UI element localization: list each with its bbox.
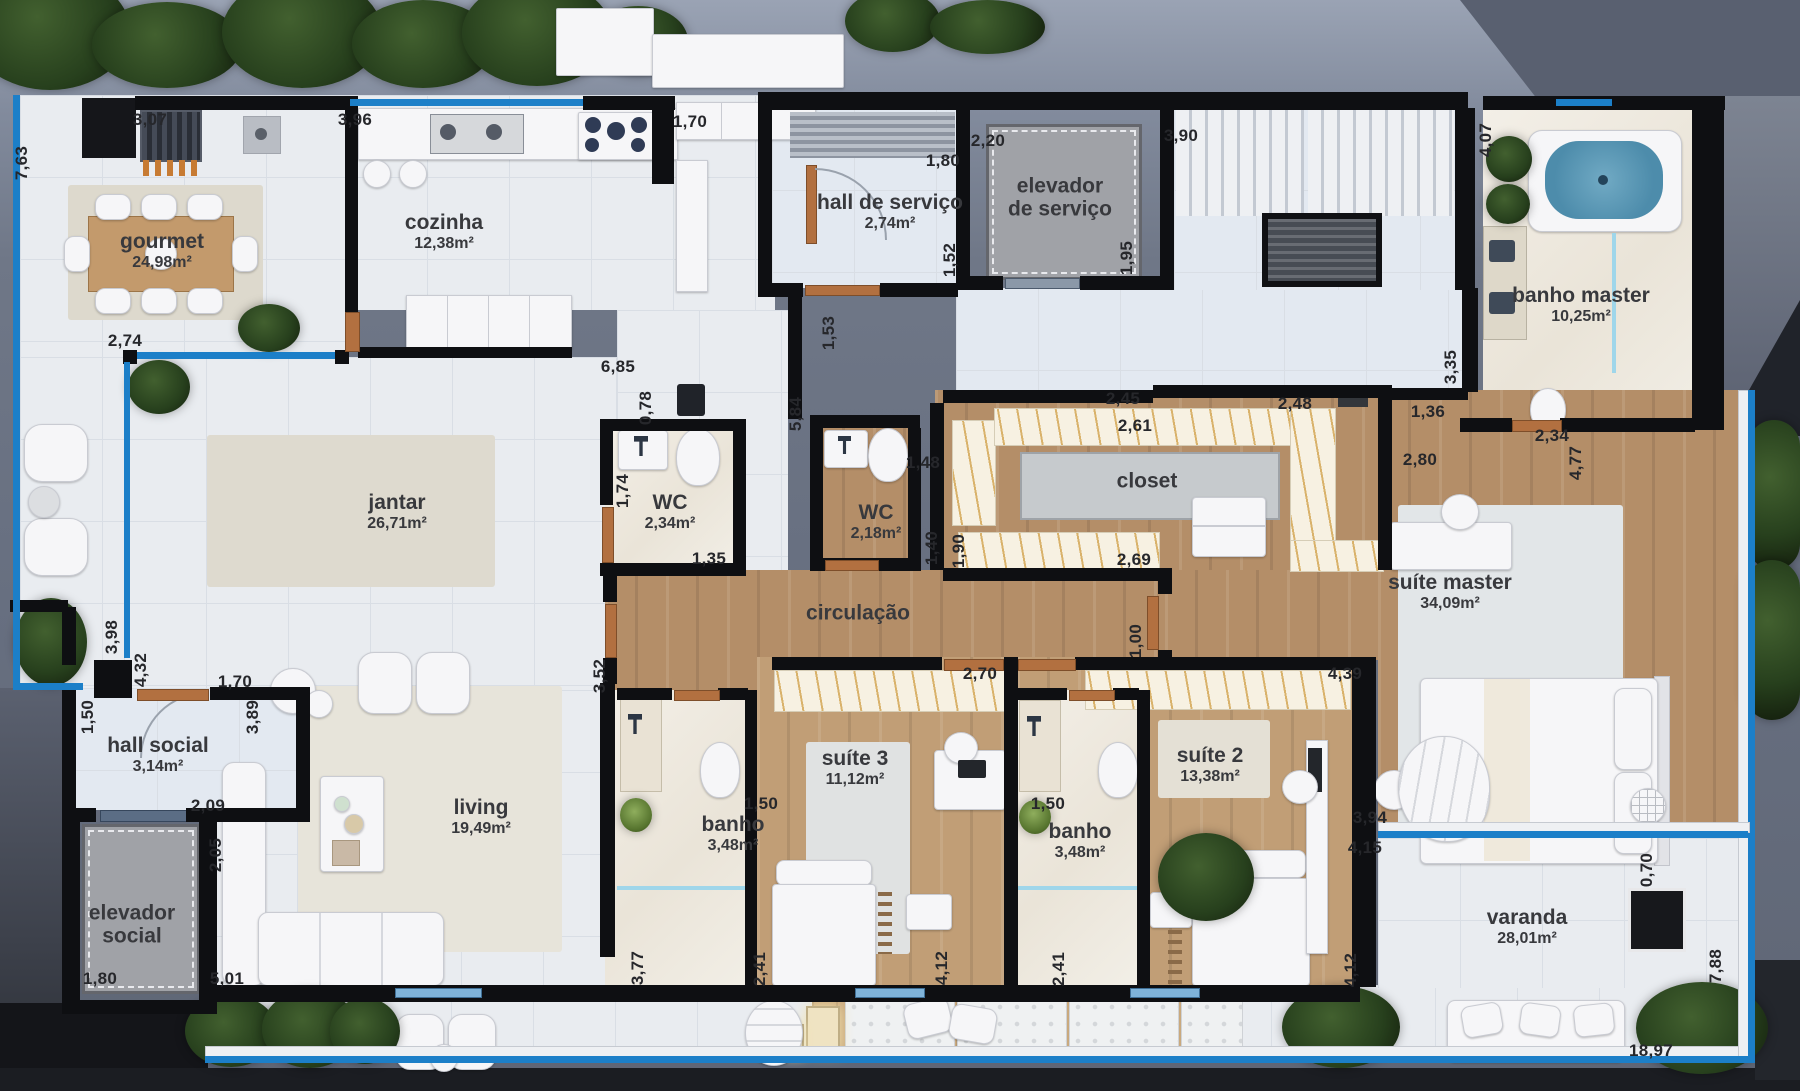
dimension-label: 3,77 <box>628 951 648 985</box>
dimension-label: 3,96 <box>338 110 372 130</box>
room-label-suite-2: suíte 213,38m² <box>1177 745 1244 785</box>
dimension-label: 4,39 <box>1328 664 1362 684</box>
room-label-gourmet: gourmet24,98m² <box>120 231 204 271</box>
dimension-label: 0,78 <box>636 391 656 425</box>
room-name-text: cozinha <box>405 212 483 235</box>
dimension-label: 1,00 <box>1126 624 1146 658</box>
dimension-label: 1,80 <box>83 969 117 989</box>
room-label-banho-master: banho master10,25m² <box>1512 285 1650 325</box>
dimension-label: 2,34 <box>1535 426 1569 446</box>
dimension-label: 1,36 <box>1411 402 1445 422</box>
room-area-text: 26,71m² <box>367 515 427 532</box>
room-label-banho-3: banho3,48m² <box>702 814 765 854</box>
room-area-text: 19,49m² <box>451 820 511 837</box>
dimension-label: 2,69 <box>1117 550 1151 570</box>
room-label-varanda: varanda28,01m² <box>1487 907 1568 947</box>
room-name-text: elevador <box>1008 175 1112 198</box>
room-label-jantar: jantar26,71m² <box>367 492 427 532</box>
room-area-text: 13,38m² <box>1177 768 1244 785</box>
dimension-label: 2,41 <box>1049 952 1069 986</box>
room-area-text: 11,12m² <box>822 771 889 788</box>
dimension-label: 3,07 <box>133 110 167 130</box>
dimension-label: 2,41 <box>750 952 770 986</box>
dimension-label: 4,12 <box>932 951 952 985</box>
dimension-label: 3,94 <box>1353 808 1387 828</box>
dimension-label: 5,01 <box>210 969 244 989</box>
room-area-text: 3,48m² <box>702 837 765 854</box>
dimension-label: 1,52 <box>940 243 960 277</box>
dimension-label: 2,45 <box>1106 389 1140 409</box>
room-name-text: banho <box>702 814 765 837</box>
room-name-text: living <box>451 797 511 820</box>
floor-plan-canvas: gourmet24,98m²cozinha12,38m²hall de serv… <box>0 0 1800 1091</box>
room-area-text: 2,18m² <box>851 525 902 542</box>
dimension-label: 2,05 <box>206 838 226 872</box>
room-name-text: hall de serviço <box>817 192 963 215</box>
room-label-hall-servico: hall de serviço2,74m² <box>817 192 963 232</box>
room-name-text: suíte 3 <box>822 748 889 771</box>
room-name-text: social <box>89 925 175 948</box>
dimension-label: 2,48 <box>1278 394 1312 414</box>
room-name-text: hall social <box>107 735 209 758</box>
dimension-label: 1,48 <box>906 453 940 473</box>
room-label-circulacao: circulação <box>806 603 910 626</box>
dimension-label: 3,35 <box>1441 350 1461 384</box>
room-name-text: suíte 2 <box>1177 745 1244 768</box>
dimension-label: 1,80 <box>926 151 960 171</box>
dimension-label: 1,50 <box>1031 794 1065 814</box>
room-name-text: elevador <box>89 902 175 925</box>
dimension-label: 1,70 <box>218 672 252 692</box>
dimension-label: 2,20 <box>971 131 1005 151</box>
dimension-label: 4,15 <box>1348 838 1382 858</box>
dimension-label: 1,53 <box>819 316 839 350</box>
room-name-text: banho master <box>1512 285 1650 308</box>
dimension-label: 4,32 <box>131 653 151 687</box>
room-area-text: 3,48m² <box>1049 844 1112 861</box>
dimension-label: 4,12 <box>1341 953 1361 987</box>
dimension-label: 1,90 <box>949 534 969 568</box>
room-area-text: 10,25m² <box>1512 308 1650 325</box>
dimension-label: 4,07 <box>1476 123 1496 157</box>
dimension-label: 4,77 <box>1566 446 1586 480</box>
dimension-label: 2,61 <box>1118 416 1152 436</box>
dimension-label: 1,50 <box>78 700 98 734</box>
room-name-text: circulação <box>806 603 910 626</box>
room-name-text: de serviço <box>1008 198 1112 221</box>
room-name-text: varanda <box>1487 907 1568 930</box>
room-area-text: 3,14m² <box>107 758 209 775</box>
dimension-label: 18,97 <box>1629 1041 1673 1061</box>
room-label-closet: closet <box>1117 471 1178 494</box>
room-area-text: 2,74m² <box>817 215 963 232</box>
room-label-wc-1: WC2,34m² <box>645 492 696 532</box>
dimension-label: 0,70 <box>1637 853 1657 887</box>
dimension-label: 7,63 <box>12 146 32 180</box>
dimension-label: 1,74 <box>613 474 633 508</box>
room-label-suite-master: suíte master34,09m² <box>1388 572 1512 612</box>
dimension-label: 2,70 <box>963 664 997 684</box>
dimension-label: 3,89 <box>243 700 263 734</box>
room-name-text: jantar <box>367 492 427 515</box>
room-label-cozinha: cozinha12,38m² <box>405 212 483 252</box>
room-label-banho-2: banho3,48m² <box>1049 821 1112 861</box>
room-name-text: gourmet <box>120 231 204 254</box>
room-name-text: WC <box>645 492 696 515</box>
dimension-label: 7,88 <box>1706 949 1726 983</box>
room-label-hall-social: hall social3,14m² <box>107 735 209 775</box>
room-area-text: 2,34m² <box>645 515 696 532</box>
room-label-living: living19,49m² <box>451 797 511 837</box>
dimension-label: 1,50 <box>744 794 778 814</box>
dimension-label: 3,52 <box>590 659 610 693</box>
dimension-label: 3,90 <box>1164 126 1198 146</box>
dimension-label: 1,40 <box>922 531 942 565</box>
dimension-label: 2,80 <box>1403 450 1437 470</box>
room-name-text: suíte master <box>1388 572 1512 595</box>
dimension-label: 2,74 <box>108 331 142 351</box>
room-area-text: 12,38m² <box>405 235 483 252</box>
dimension-label: 2,09 <box>191 796 225 816</box>
room-name-text: banho <box>1049 821 1112 844</box>
room-label-elevador-social: elevadorsocial <box>89 902 175 947</box>
dimension-label: 5,84 <box>786 397 806 431</box>
dimension-label: 1,70 <box>673 112 707 132</box>
room-label-wc-2: WC2,18m² <box>851 502 902 542</box>
room-area-text: 24,98m² <box>120 254 204 271</box>
dimension-label: 3,98 <box>102 620 122 654</box>
room-name-text: WC <box>851 502 902 525</box>
room-label-suite-3: suíte 311,12m² <box>822 748 889 788</box>
dimension-label: 1,35 <box>692 549 726 569</box>
room-name-text: closet <box>1117 471 1178 494</box>
room-area-text: 34,09m² <box>1388 595 1512 612</box>
dimension-label: 6,85 <box>601 357 635 377</box>
room-label-elevador-servico: elevadorde serviço <box>1008 175 1112 220</box>
labels-layer: gourmet24,98m²cozinha12,38m²hall de serv… <box>0 0 1800 1091</box>
dimension-label: 1,95 <box>1117 241 1137 275</box>
room-area-text: 28,01m² <box>1487 930 1568 947</box>
